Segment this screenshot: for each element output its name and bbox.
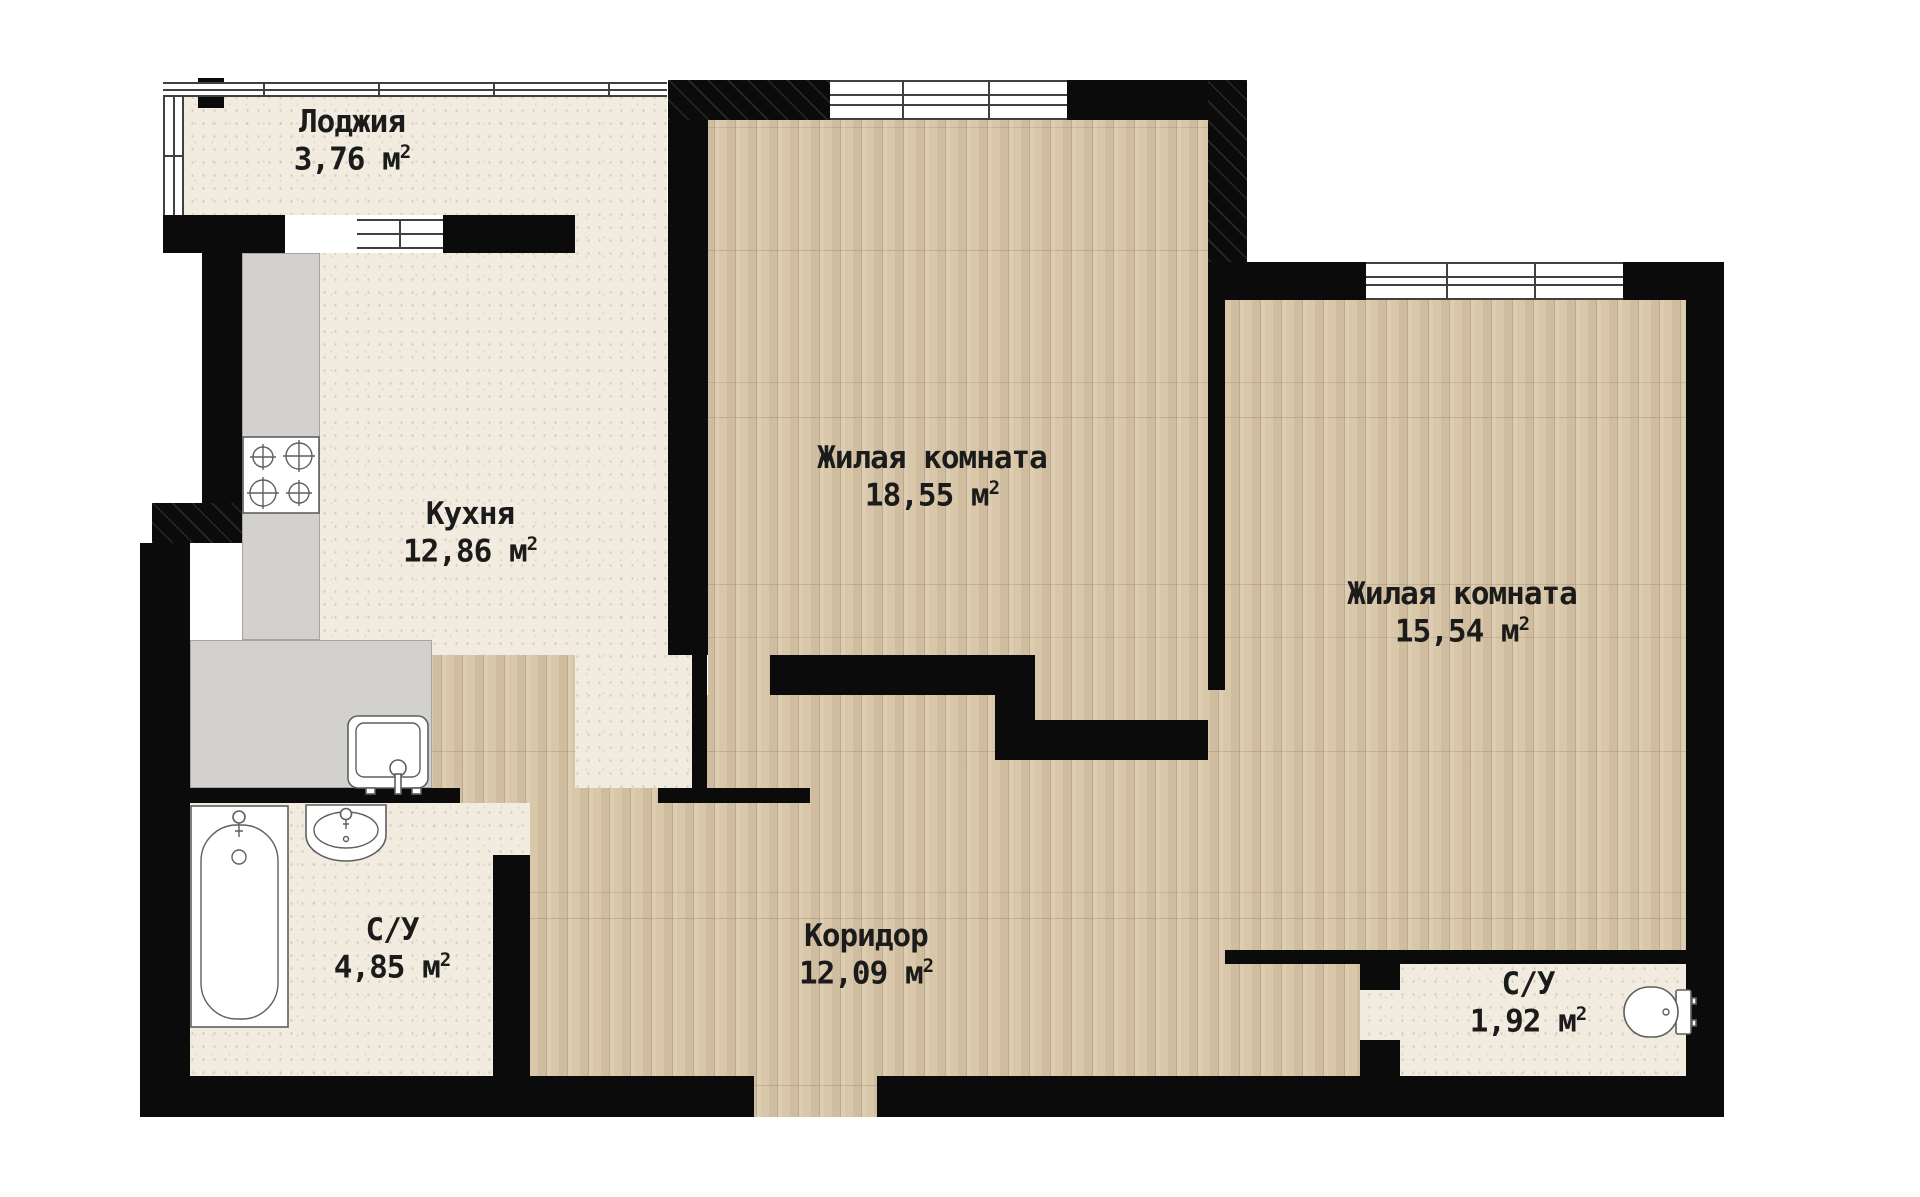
corridor-main-floor: [530, 803, 1360, 1076]
bathroom-2-left-wall-upper: [1360, 950, 1400, 990]
room-area: 12,09 м2: [799, 955, 933, 992]
bathtub-icon: [190, 805, 289, 1028]
bathroom-1-door-floor: [493, 803, 530, 855]
room-name: Коридор: [799, 918, 933, 955]
bathroom-2-door-floor: [1360, 990, 1400, 1040]
room-area: 12,86 м2: [403, 533, 537, 570]
left-exterior-wall: [140, 543, 190, 1076]
corridor-kitchen-door-floor: [460, 788, 658, 803]
room-name: Жилая комната: [817, 440, 1047, 477]
corridor-right-arm-floor: [995, 760, 1225, 803]
left-wall-step-block: [152, 503, 242, 543]
room-area: 1,92 м2: [1470, 1003, 1586, 1040]
living-room-1-top-wall-right: [1067, 80, 1208, 120]
kitchen-living-room-1-wall: [668, 120, 708, 655]
room-label-bathroom-2: С/У 1,92 м2: [1470, 966, 1586, 1039]
toilet-icon: [1608, 982, 1698, 1042]
window-mullion: [608, 82, 610, 97]
window-mullion: [399, 219, 401, 249]
room-name: Лоджия: [294, 104, 410, 141]
room-label-loggia: Лоджия 3,76 м2: [294, 104, 410, 177]
living-room-1-door-floor: [708, 655, 770, 695]
corridor-stub-wall: [658, 788, 810, 803]
living-room-2-top-wall-left: [1208, 262, 1366, 300]
corridor-nook-floor: [1035, 655, 1208, 720]
living-room-2-top-wall-right: [1623, 262, 1724, 300]
kitchen-corridor-partition: [692, 655, 707, 788]
window-mullion: [263, 82, 265, 97]
loggia-bottom-wall-right: [443, 215, 575, 253]
floor-plan: Лоджия 3,76 м2 Кухня 12,86 м2 Жилая комн…: [0, 0, 1920, 1197]
room-area: 4,85 м2: [334, 949, 450, 986]
corridor-upper-floor: [707, 695, 995, 803]
washbasin-icon: [303, 803, 389, 867]
mid-horizontal-wall: [1035, 720, 1208, 760]
loggia-floor: [180, 97, 667, 215]
window-mullion: [493, 82, 495, 97]
living-room-2-door-floor: [1208, 690, 1225, 760]
stove-icon: [242, 436, 320, 514]
kitchen-loggia-window: [357, 219, 443, 249]
kitchen-floor-lower: [575, 655, 692, 788]
living-room-1-bottom-wall: [770, 655, 995, 695]
living-room-1-window: [830, 80, 1067, 120]
loggia-glazing-top: [163, 82, 667, 97]
living-room-2-window: [1366, 262, 1623, 300]
window-mullion: [378, 82, 380, 97]
room-name: С/У: [334, 912, 450, 949]
entrance-door-floor: [754, 1076, 877, 1117]
room-label-kitchen: Кухня 12,86 м2: [403, 496, 537, 569]
window-mullion: [1534, 262, 1536, 300]
room-label-bathroom-1: С/У 4,85 м2: [334, 912, 450, 985]
loggia-kitchen-open-floor: [575, 215, 668, 253]
living-room-1-top-wall-left: [668, 80, 830, 120]
bathroom-2-left-wall-lower: [1360, 1040, 1400, 1076]
kitchen-sink-icon: [346, 714, 430, 804]
room-area: 15,54 м2: [1347, 613, 1577, 650]
bathroom-1-right-wall: [493, 855, 530, 1076]
kitchen-left-wall-upper: [202, 215, 242, 503]
room-area: 18,55 м2: [817, 477, 1047, 514]
living-rooms-partition: [1208, 300, 1225, 690]
room-name: Кухня: [403, 496, 537, 533]
window-mullion: [165, 155, 182, 157]
window-mullion: [988, 80, 990, 120]
room-name: Жилая комната: [1347, 576, 1577, 613]
room-area: 3,76 м2: [294, 141, 410, 178]
living-room-1-floor: [708, 120, 1208, 655]
bottom-exterior-wall-right: [877, 1076, 1724, 1117]
window-mullion: [902, 80, 904, 120]
loggia-glazing-left: [163, 97, 184, 215]
window-mullion: [1446, 262, 1448, 300]
room-label-living-room-1: Жилая комната 18,55 м2: [817, 440, 1047, 513]
mid-vertical-wall: [995, 655, 1035, 760]
bottom-exterior-wall-left: [140, 1076, 754, 1117]
room-label-living-room-2: Жилая комната 15,54 м2: [1347, 576, 1577, 649]
corridor-kitchen-entry-floor: [432, 655, 575, 803]
room-name: С/У: [1470, 966, 1586, 1003]
bathroom-2-top-wall: [1225, 950, 1686, 964]
room-label-corridor: Коридор 12,09 м2: [799, 918, 933, 991]
